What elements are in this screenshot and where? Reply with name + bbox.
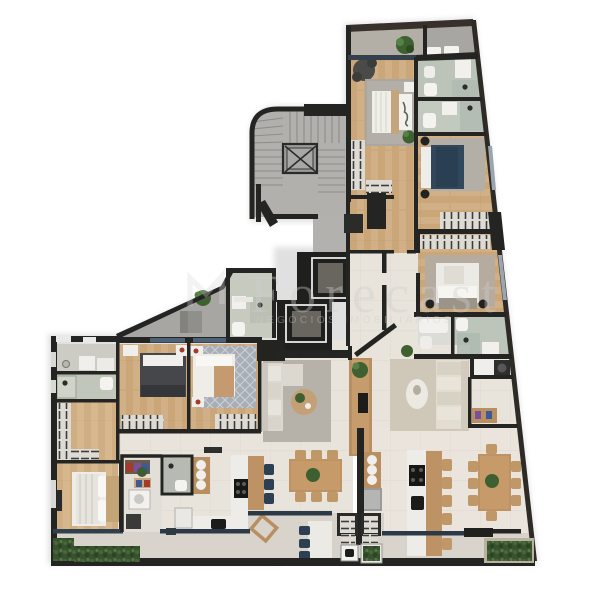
svg-text:NEGÓCIOS IMOBILIÁRIOS: NEGÓCIOS IMOBILIÁRIOS [256, 313, 454, 326]
